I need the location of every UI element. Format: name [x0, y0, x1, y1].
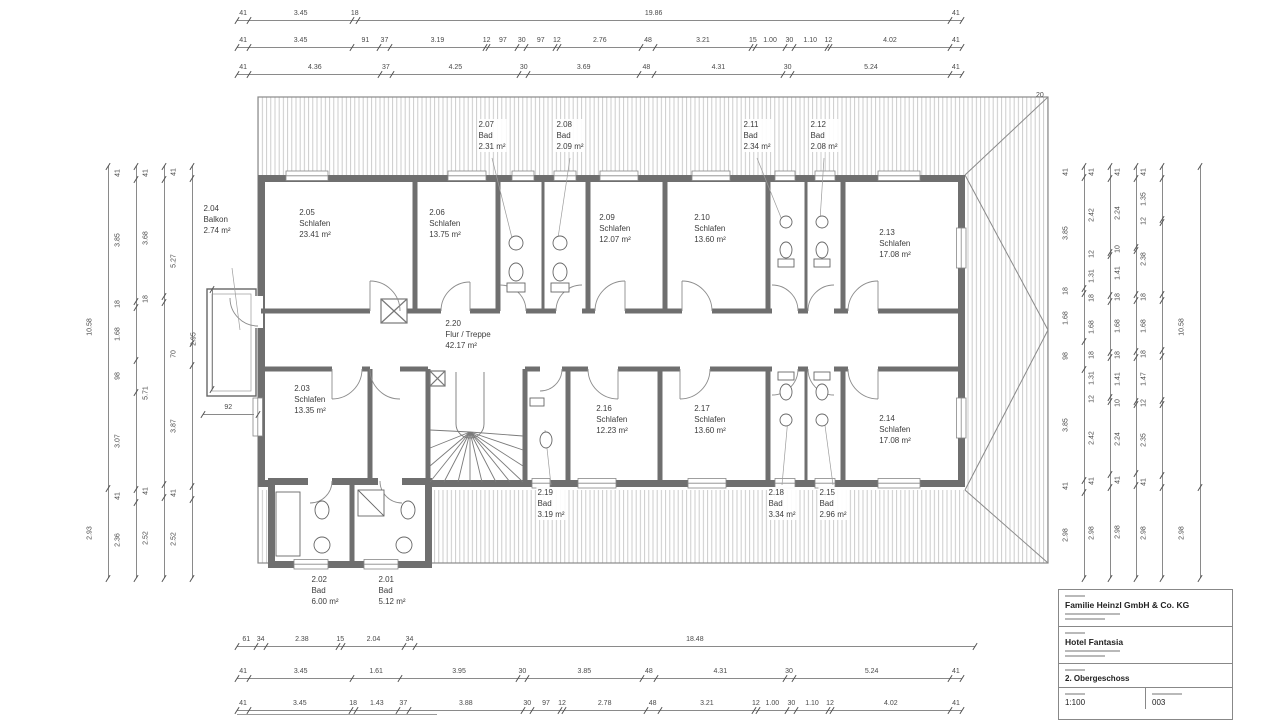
- dim-value: 41: [952, 10, 960, 17]
- dim-value: 41: [1141, 478, 1148, 486]
- room-name: Flur / Treppe: [445, 329, 490, 340]
- client-name: Familie Heinzl GmbH & Co. KG: [1065, 600, 1226, 610]
- dim-segment: 30: [517, 31, 526, 48]
- dim-value: 70: [171, 351, 178, 359]
- dim-value: 2.38: [1141, 252, 1148, 266]
- dim-value: 41: [239, 64, 247, 71]
- room-label-2-20-flur: 2.20 Flur / Treppe 42.17 m²: [445, 318, 490, 351]
- room-area: 12.23 m²: [596, 425, 628, 436]
- dim-segment: 1.00: [755, 31, 785, 48]
- dim-segment: 41: [1120, 166, 1137, 179]
- room-label-2-16: 2.16 Schlafen 12.23 m²: [596, 403, 628, 436]
- dim-value: 1.31: [1089, 371, 1096, 385]
- dim-value: 3.19: [431, 37, 445, 44]
- dim-value: 2.24: [1115, 206, 1122, 220]
- dim-value: 1.43: [370, 700, 384, 707]
- title-block: Familie Heinzl GmbH & Co. KG Hotel Fanta…: [1058, 589, 1233, 720]
- dim-value: 97: [537, 37, 545, 44]
- room-name: Bad: [378, 585, 405, 596]
- dim-value: 41: [239, 700, 247, 707]
- dim-segment: 1.68: [120, 307, 137, 360]
- dim-value: 3.85: [577, 668, 591, 675]
- dim-value: 2.76: [593, 37, 607, 44]
- dim-value: 41: [1089, 168, 1096, 176]
- dim-value: 91: [362, 37, 370, 44]
- room-name: Schlafen: [299, 218, 331, 229]
- dim-chain-balcony-length: 2.95: [196, 289, 212, 389]
- dim-segment: 30: [523, 694, 532, 711]
- room-number: 2.16: [596, 403, 628, 414]
- dim-value: 3.45: [294, 668, 308, 675]
- room-name: Balkon: [203, 214, 230, 225]
- dim-segment: 4.31: [656, 662, 785, 679]
- dim-segment: 1.41: [1120, 251, 1137, 295]
- dim-value: 37: [399, 700, 407, 707]
- dim-segment: 30: [787, 694, 796, 711]
- dim-segment: 1.47: [1146, 356, 1163, 400]
- dim-value: 2.42: [1089, 208, 1096, 222]
- dim-value: 4.31: [713, 668, 727, 675]
- dim-value: 1.68: [1141, 319, 1148, 333]
- dim-segment: 5.71: [148, 302, 165, 484]
- dim-segment: 41: [176, 166, 193, 179]
- room-name: Bad: [311, 585, 338, 596]
- room-label-2-12: 2.12 Bad 2.08 m²: [809, 119, 838, 152]
- dim-value: 1.68: [115, 327, 122, 341]
- room-area: 42.17 m²: [445, 340, 490, 351]
- room-number: 2.13: [879, 227, 911, 238]
- dim-segment: 4.02: [830, 31, 950, 48]
- dim-value: 3.21: [696, 37, 710, 44]
- room-label-2-01: 2.01 Bad 5.12 m²: [378, 574, 405, 607]
- dim-segment: 97: [532, 694, 561, 711]
- room-area: 5.12 m²: [378, 596, 405, 607]
- dim-value: 18.48: [686, 636, 704, 643]
- room-area: 2.08 m²: [809, 141, 838, 152]
- dim-value: 3.85: [1063, 418, 1070, 432]
- dim-segment: 1.43: [356, 694, 398, 711]
- dim-value: 2.78: [598, 700, 612, 707]
- microtext-line: [1065, 655, 1105, 657]
- dim-value: 97: [542, 700, 550, 707]
- dim-segment: 4.25: [392, 58, 520, 75]
- dim-chain-right-5: 10.582.98: [1184, 166, 1200, 578]
- room-number: 2.02: [311, 574, 338, 585]
- dim-value: 3.87: [171, 419, 178, 433]
- dim-segment: 2.76: [559, 31, 641, 48]
- room-label-2-13: 2.13 Schlafen 17.08 m²: [879, 227, 911, 260]
- dim-segment: 3.21: [660, 694, 754, 711]
- dim-value: 41: [171, 169, 178, 177]
- dim-segment: 34: [404, 630, 414, 647]
- dim-chain-left-2: 413.85181.68983.07412.36: [120, 166, 136, 578]
- microtext-line: [1152, 693, 1182, 695]
- dim-value: 4.25: [449, 64, 463, 71]
- dim-chain-right-3: 412.24101.41181.68181.41102.24412.98: [1120, 166, 1136, 578]
- room-area: 3.19 m²: [536, 509, 565, 520]
- room-label-2-14: 2.14 Schlafen 17.08 m²: [879, 413, 911, 446]
- dim-value: 3.07: [115, 434, 122, 448]
- room-label-2-11: 2.11 Bad 2.34 m²: [742, 119, 771, 152]
- dim-segment: 2.36: [120, 503, 137, 578]
- dim-value: 98: [115, 373, 122, 381]
- dim-segment: 2.93: [92, 489, 109, 578]
- dim-segment: 3.88: [409, 694, 523, 711]
- dim-segment: 3.07: [120, 392, 137, 490]
- room-area: 23.41 m²: [299, 229, 331, 240]
- room-area: 6.00 m²: [311, 596, 338, 607]
- dim-segment: 2.24: [1120, 404, 1137, 473]
- dim-segment: 41: [1094, 475, 1111, 487]
- dim-chain-right-1: 413.85181.68983.85412.98: [1068, 166, 1084, 578]
- dim-segment: 97: [526, 31, 555, 48]
- dim-value: 61: [242, 636, 250, 643]
- dim-segment: 3.45: [249, 694, 350, 711]
- dim-segment: 1.00: [758, 694, 787, 711]
- dim-value: 30: [518, 37, 526, 44]
- dim-segment: 3.85: [120, 179, 137, 302]
- dim-value: 30: [519, 668, 527, 675]
- dim-segment: 70: [176, 344, 193, 366]
- dim-value: 30: [785, 668, 793, 675]
- dim-value: 2.36: [115, 534, 122, 548]
- dim-segment: 4.36: [249, 58, 380, 75]
- sheet-number: 003: [1152, 698, 1226, 707]
- room-number: 2.20: [445, 318, 490, 329]
- dim-value: 48: [645, 668, 653, 675]
- room-label-2-03: 2.03 Schlafen 13.35 m²: [294, 383, 326, 416]
- dim-segment: 48: [641, 31, 655, 48]
- dim-segment: 41: [237, 662, 249, 679]
- dim-segment: 3.19: [390, 31, 485, 48]
- dim-value: 2.38: [295, 636, 309, 643]
- room-label-2-05: 2.05 Schlafen 23.41 m²: [299, 207, 331, 240]
- dim-segment: 3.45: [249, 662, 352, 679]
- microtext-line: [1065, 693, 1085, 695]
- dim-value: 3.85: [115, 234, 122, 248]
- dim-value: 2.52: [143, 531, 150, 545]
- dim-value: 1.47: [1141, 372, 1148, 386]
- dim-value: 1.61: [369, 668, 383, 675]
- room-number: 2.18: [767, 487, 796, 498]
- dim-segment: 41: [237, 31, 249, 48]
- scale-cell: 1:100: [1059, 688, 1146, 709]
- dim-segment: 61: [237, 630, 256, 647]
- dim-segment: 1.10: [794, 31, 827, 48]
- dim-segment: 41: [237, 694, 249, 711]
- dim-segment: 30: [519, 58, 528, 75]
- sheet-cell: 003: [1146, 688, 1232, 709]
- dim-segment: 41: [1146, 166, 1163, 178]
- dim-chain-left-4: 415.27703.87412.52: [176, 166, 192, 578]
- room-name: Schlafen: [694, 414, 726, 425]
- room-name: Schlafen: [294, 394, 326, 405]
- dim-value: 3.21: [700, 700, 714, 707]
- dim-value: 41: [1141, 168, 1148, 176]
- dim-segment: 5.24: [792, 58, 950, 75]
- dim-chain-top-3: 414.36374.25303.69484.31305.2441: [237, 58, 962, 74]
- room-name: Bad: [555, 130, 584, 141]
- dim-segment: 41: [120, 490, 137, 503]
- dim-chain-right-2: 412.42121.31181.68181.31122.42412.98: [1094, 166, 1110, 578]
- dim-segment: 3.45: [249, 4, 352, 21]
- room-area: 17.08 m²: [879, 435, 911, 446]
- room-name: Schlafen: [596, 414, 628, 425]
- dim-chain-bottom-3: 413.45181.43373.883097122.78483.21121.00…: [237, 694, 962, 710]
- room-name: Schlafen: [879, 238, 911, 249]
- room-number: 2.11: [742, 119, 771, 130]
- room-area: 13.75 m²: [429, 229, 461, 240]
- dim-segment: 2.52: [176, 499, 193, 578]
- room-name: Bad: [767, 498, 796, 509]
- dim-value: 41: [952, 700, 960, 707]
- dim-segment: 2.42: [1094, 401, 1111, 475]
- dim-segment: 1.10: [796, 694, 828, 711]
- microtext-line: [1065, 632, 1085, 634]
- dim-segment: 41: [950, 31, 962, 48]
- dim-segment: 10.58: [1184, 166, 1201, 487]
- microtext-line: [1065, 595, 1085, 597]
- dim-segment: 1.68: [1094, 301, 1111, 352]
- dim-value: 1.41: [1115, 372, 1122, 386]
- dim-segment: 3.85: [1068, 370, 1085, 481]
- dim-chain-top-1: 413.451819.8641: [237, 4, 962, 20]
- dim-value: 30: [523, 700, 531, 707]
- dim-segment: 30: [785, 662, 794, 679]
- room-label-2-10: 2.10 Schlafen 13.60 m²: [694, 212, 726, 245]
- dim-value: 2.42: [1089, 431, 1096, 445]
- room-label-2-06: 2.06 Schlafen 13.75 m²: [429, 207, 461, 240]
- dim-value: 3.45: [293, 700, 307, 707]
- dim-segment: 1.61: [352, 662, 400, 679]
- dim-value: 2.52: [171, 532, 178, 546]
- dim-segment: 30: [783, 58, 792, 75]
- dim-segment: 37: [379, 31, 390, 48]
- microtext-line: [1065, 650, 1120, 652]
- dim-value: 34: [257, 636, 265, 643]
- title-block-scale-row: 1:100 003: [1059, 688, 1232, 709]
- room-number: 2.04: [203, 203, 230, 214]
- dim-segment: 41: [1120, 473, 1137, 486]
- dim-value: 10.58: [87, 319, 94, 337]
- dim-value: 41: [952, 668, 960, 675]
- dim-segment: 91: [352, 31, 379, 48]
- room-number: 2.10: [694, 212, 726, 223]
- dim-segment: 2.98: [1068, 492, 1085, 578]
- dim-value: 41: [239, 10, 247, 17]
- dim-value: 34: [406, 636, 414, 643]
- dim-segment: 3.68: [148, 179, 165, 296]
- dim-chain-bottom-1: 61342.38152.043418.48: [237, 630, 975, 646]
- dim-value: 48: [644, 37, 652, 44]
- room-area: 3.34 m²: [767, 509, 796, 520]
- dim-segment: 41: [950, 58, 962, 75]
- dim-value: 41: [1063, 168, 1070, 176]
- dim-segment: 1.68: [1146, 300, 1163, 351]
- room-number: 2.15: [818, 487, 847, 498]
- dim-value: 2.24: [1115, 432, 1122, 446]
- dim-segment: 2.52: [148, 498, 165, 578]
- room-number: 2.12: [809, 119, 838, 130]
- dim-segment: 41: [950, 694, 962, 711]
- dim-segment: 41: [176, 486, 193, 499]
- dim-value: 2.04: [367, 636, 381, 643]
- dim-label-corner: 20: [1036, 92, 1044, 99]
- room-name: Schlafen: [429, 218, 461, 229]
- room-number: 2.01: [378, 574, 405, 585]
- dim-segment: 3.85: [1068, 178, 1085, 289]
- dim-segment: 1.31: [1094, 256, 1111, 296]
- dim-value: 30: [520, 64, 528, 71]
- dim-chain-right-4: 411.35122.38181.68181.47122.35412.98: [1146, 166, 1162, 578]
- room-number: 2.17: [694, 403, 726, 414]
- room-area: 2.96 m²: [818, 509, 847, 520]
- dim-segment: 2.38: [1146, 223, 1163, 295]
- dim-segment: 41: [148, 484, 165, 497]
- room-number: 2.03: [294, 383, 326, 394]
- room-area: 17.08 m²: [879, 249, 911, 260]
- dim-value: 1.41: [1115, 266, 1122, 280]
- room-label-2-19: 2.19 Bad 3.19 m²: [536, 487, 565, 520]
- floor-name: 2. Obergeschoss: [1065, 674, 1226, 683]
- dim-value: 41: [239, 668, 247, 675]
- dim-segment: 10.58: [92, 166, 109, 489]
- dim-segment: 1.35: [1146, 178, 1163, 219]
- title-block-project-section: Hotel Fantasia: [1059, 627, 1232, 664]
- dim-value: 19.86: [645, 10, 663, 17]
- room-number: 2.14: [879, 413, 911, 424]
- dim-segment: 2.35: [1146, 404, 1163, 475]
- dim-segment: 41: [1068, 481, 1085, 493]
- dim-value: 37: [382, 64, 390, 71]
- dim-value: 97: [499, 37, 507, 44]
- dim-segment: 98: [120, 361, 137, 392]
- dim-segment: 48: [642, 662, 656, 679]
- dim-value: 41: [1063, 483, 1070, 491]
- floorplan-sheet: 2.05 Schlafen 23.41 m² 2.06 Schlafen 13.…: [0, 0, 1280, 720]
- dim-segment: 92: [203, 398, 254, 415]
- dim-segment: 37: [398, 694, 409, 711]
- room-label-2-04-balkon: 2.04 Balkon 2.74 m²: [203, 203, 230, 236]
- dim-line-partial: [237, 714, 437, 715]
- room-area: 2.09 m²: [555, 141, 584, 152]
- room-area: 2.74 m²: [203, 225, 230, 236]
- balcony-outline: [207, 289, 256, 396]
- dim-segment: 41: [120, 166, 137, 179]
- dim-segment: 1.31: [1094, 358, 1111, 398]
- dim-segment: 3.21: [655, 31, 751, 48]
- room-label-2-07: 2.07 Bad 2.31 m²: [477, 119, 506, 152]
- dim-segment: 2.95: [196, 289, 213, 389]
- dim-value: 3.45: [294, 10, 308, 17]
- dim-segment: 2.98: [1120, 486, 1137, 578]
- room-name: Bad: [809, 130, 838, 141]
- dim-value: 5.27: [171, 254, 178, 268]
- dim-chain-balcony-depth: 92: [203, 398, 258, 414]
- dim-segment: 41: [237, 4, 249, 21]
- dim-value: 3.68: [143, 231, 150, 245]
- dim-value: 1.31: [1089, 269, 1096, 283]
- dim-segment: 2.78: [564, 694, 646, 711]
- project-name: Hotel Fantasia: [1065, 637, 1226, 647]
- dim-value: 2.98: [1115, 525, 1122, 539]
- dim-segment: 2.98: [1184, 487, 1201, 578]
- dim-segment: 1.68: [1068, 294, 1085, 342]
- dim-segment: 2.38: [266, 630, 338, 647]
- dim-value: 1.68: [1063, 311, 1070, 325]
- microtext-line: [1065, 618, 1105, 620]
- dim-value: 1.10: [803, 37, 817, 44]
- dim-value: 1.35: [1141, 192, 1148, 206]
- dim-segment: 5.24: [794, 662, 950, 679]
- dim-value: 2.93: [87, 527, 94, 541]
- dim-segment: 2.98: [1146, 488, 1163, 578]
- dim-value: 41: [239, 37, 247, 44]
- dim-value: 2.98: [1063, 528, 1070, 542]
- dim-segment: 1.41: [1120, 358, 1137, 402]
- dim-segment: 5.27: [176, 179, 193, 344]
- room-label-2-18: 2.18 Bad 3.34 m²: [767, 487, 796, 520]
- dim-chain-left-1: 10.582.93: [92, 166, 108, 578]
- dim-chain-left-3: 413.68185.71412.52: [148, 166, 164, 578]
- microtext-line: [1065, 613, 1120, 615]
- dim-value: 41: [952, 37, 960, 44]
- room-number: 2.05: [299, 207, 331, 218]
- dim-value: 37: [381, 37, 389, 44]
- room-number: 2.09: [599, 212, 631, 223]
- dim-segment: 41: [1068, 166, 1085, 178]
- dim-segment: 4.31: [654, 58, 784, 75]
- room-area: 12.07 m²: [599, 234, 631, 245]
- dim-chain-top-2: 413.4591373.1912973097122.76483.21151.00…: [237, 31, 962, 47]
- room-number: 2.06: [429, 207, 461, 218]
- dim-value: 41: [1115, 476, 1122, 484]
- dim-segment: 3.87: [176, 365, 193, 486]
- scale-value: 1:100: [1065, 698, 1139, 707]
- room-name: Schlafen: [599, 223, 631, 234]
- dim-value: 4.02: [884, 700, 898, 707]
- room-name: Bad: [536, 498, 565, 509]
- room-number: 2.19: [536, 487, 565, 498]
- dim-value: 4.36: [308, 64, 322, 71]
- room-label-2-08: 2.08 Bad 2.09 m²: [555, 119, 584, 152]
- dim-segment: 97: [488, 31, 517, 48]
- dim-segment: 41: [1094, 166, 1111, 178]
- dim-value: 2.35: [1141, 433, 1148, 447]
- dim-segment: 2.98: [1094, 487, 1111, 578]
- dim-value: 98: [1063, 352, 1070, 360]
- dim-segment: 19.86: [358, 4, 950, 21]
- dim-segment: 98: [1068, 342, 1085, 370]
- dim-segment: 2.42: [1094, 178, 1111, 252]
- dim-segment: 2.04: [343, 630, 405, 647]
- dim-segment: 30: [518, 662, 527, 679]
- dim-value: 30: [788, 700, 796, 707]
- dim-value: 30: [784, 64, 792, 71]
- room-name: Bad: [818, 498, 847, 509]
- title-block-floor-section: 2. Obergeschoss: [1059, 664, 1232, 688]
- dim-segment: 41: [950, 662, 962, 679]
- room-number: 2.07: [477, 119, 506, 130]
- room-name: Schlafen: [694, 223, 726, 234]
- room-area: 2.34 m²: [742, 141, 771, 152]
- dim-value: 48: [649, 700, 657, 707]
- dim-value: 41: [115, 492, 122, 500]
- dim-value: 5.24: [864, 64, 878, 71]
- dim-value: 30: [785, 37, 793, 44]
- dim-segment: 48: [639, 58, 653, 75]
- microtext-line: [1065, 669, 1085, 671]
